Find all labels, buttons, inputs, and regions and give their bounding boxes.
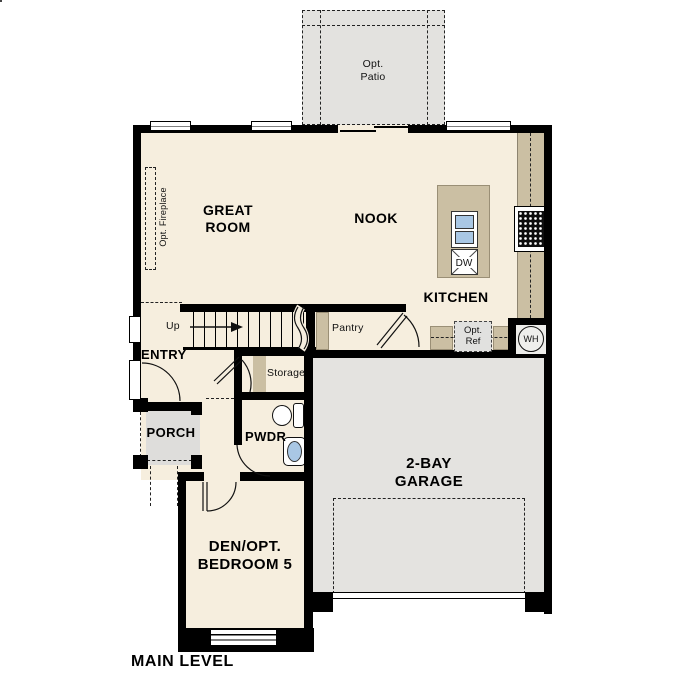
porch-post-tl [133, 398, 148, 412]
pantry-label: Pantry [332, 322, 364, 334]
toilet-bowl [272, 405, 292, 426]
window-top-1 [150, 121, 191, 131]
opt-fireplace-label: Opt. Fireplace [158, 171, 168, 263]
patio-roof-line [302, 25, 445, 26]
lower-counter-left [430, 326, 453, 350]
water-heater-label: WH [524, 334, 539, 344]
storage-left-wall [234, 348, 242, 400]
water-heater: WH [518, 326, 544, 352]
patio-post-line-left [320, 10, 321, 125]
opt-ref-box [0, 0, 2, 2]
garage-label-line2: GARAGE [379, 473, 479, 491]
den-label-line1: DEN/OPT. [183, 538, 307, 556]
den-window [210, 629, 277, 646]
pantry-shelf [316, 312, 329, 350]
den-label: DEN/OPT. BEDROOM 5 [183, 538, 307, 574]
porch-post-br [191, 455, 202, 469]
up-label: Up [166, 320, 180, 332]
walkway-dash-left [150, 466, 151, 506]
garage-label: 2-BAY GARAGE [379, 455, 479, 491]
powder-den-wall-right [240, 472, 312, 481]
entry-door-leaf [129, 360, 141, 400]
den-label-line2: BEDROOM 5 [183, 556, 307, 574]
driveway-dashed-area [333, 498, 525, 594]
range-burners [518, 211, 544, 247]
right-wall [544, 125, 552, 614]
garage-door [333, 592, 525, 599]
great-room-opening-dash [141, 302, 182, 303]
main-level-label: MAIN LEVEL [131, 652, 234, 671]
powder-sink-bowl [287, 441, 302, 462]
patio-label: Opt. Patio [343, 58, 403, 84]
stairs-pantry-top-wall [180, 304, 406, 312]
toilet-tank [293, 403, 304, 428]
opt-ref: Opt. Ref [454, 321, 492, 352]
patio-post-line-right [427, 10, 428, 125]
opt-fireplace-box [145, 167, 156, 270]
great-room-label: GREAT ROOM [176, 202, 280, 236]
storage-bottom-wall [234, 392, 312, 400]
sink-bowl-bottom [455, 231, 474, 244]
storage-top-wall [234, 348, 312, 356]
storage-label: Storage [267, 367, 305, 379]
opt-ref-line1: Opt. [464, 326, 482, 337]
powder-left-wall [234, 400, 242, 445]
window-top-2 [251, 121, 292, 131]
window-top-3 [446, 121, 511, 131]
dishwasher-box [451, 249, 478, 275]
porch-edge-dash-bottom [147, 460, 192, 461]
garage-corner-left [311, 592, 333, 612]
garage-label-line1: 2-BAY [379, 455, 479, 473]
garage-corner-right [525, 592, 552, 612]
floor-plan: Opt. Patio Up [0, 0, 687, 687]
porch-label: PORCH [143, 425, 199, 441]
porch-post-bl [133, 455, 148, 469]
pwdr-label: PWDR [245, 429, 286, 445]
opt-ref-line2: Ref [466, 337, 481, 348]
porch-edge-dash-left [140, 412, 141, 457]
entry-label: ENTRY [141, 347, 187, 363]
window-entry-left [129, 316, 141, 343]
storage-door [253, 353, 266, 394]
great-room-label-line2: ROOM [176, 219, 280, 236]
great-room-label-line1: GREAT [176, 202, 280, 219]
sliding-door-panel-inner [340, 130, 376, 132]
kitchen-label: KITCHEN [414, 289, 498, 306]
stair-treads [183, 312, 318, 350]
porch-post-tr [191, 402, 202, 415]
nook-label: NOOK [345, 210, 407, 227]
patio-label-line2: Patio [343, 71, 403, 84]
sink-bowl-top [455, 215, 474, 229]
patio-label-line1: Opt. [343, 58, 403, 71]
sliding-door-panel-outer [374, 126, 408, 128]
